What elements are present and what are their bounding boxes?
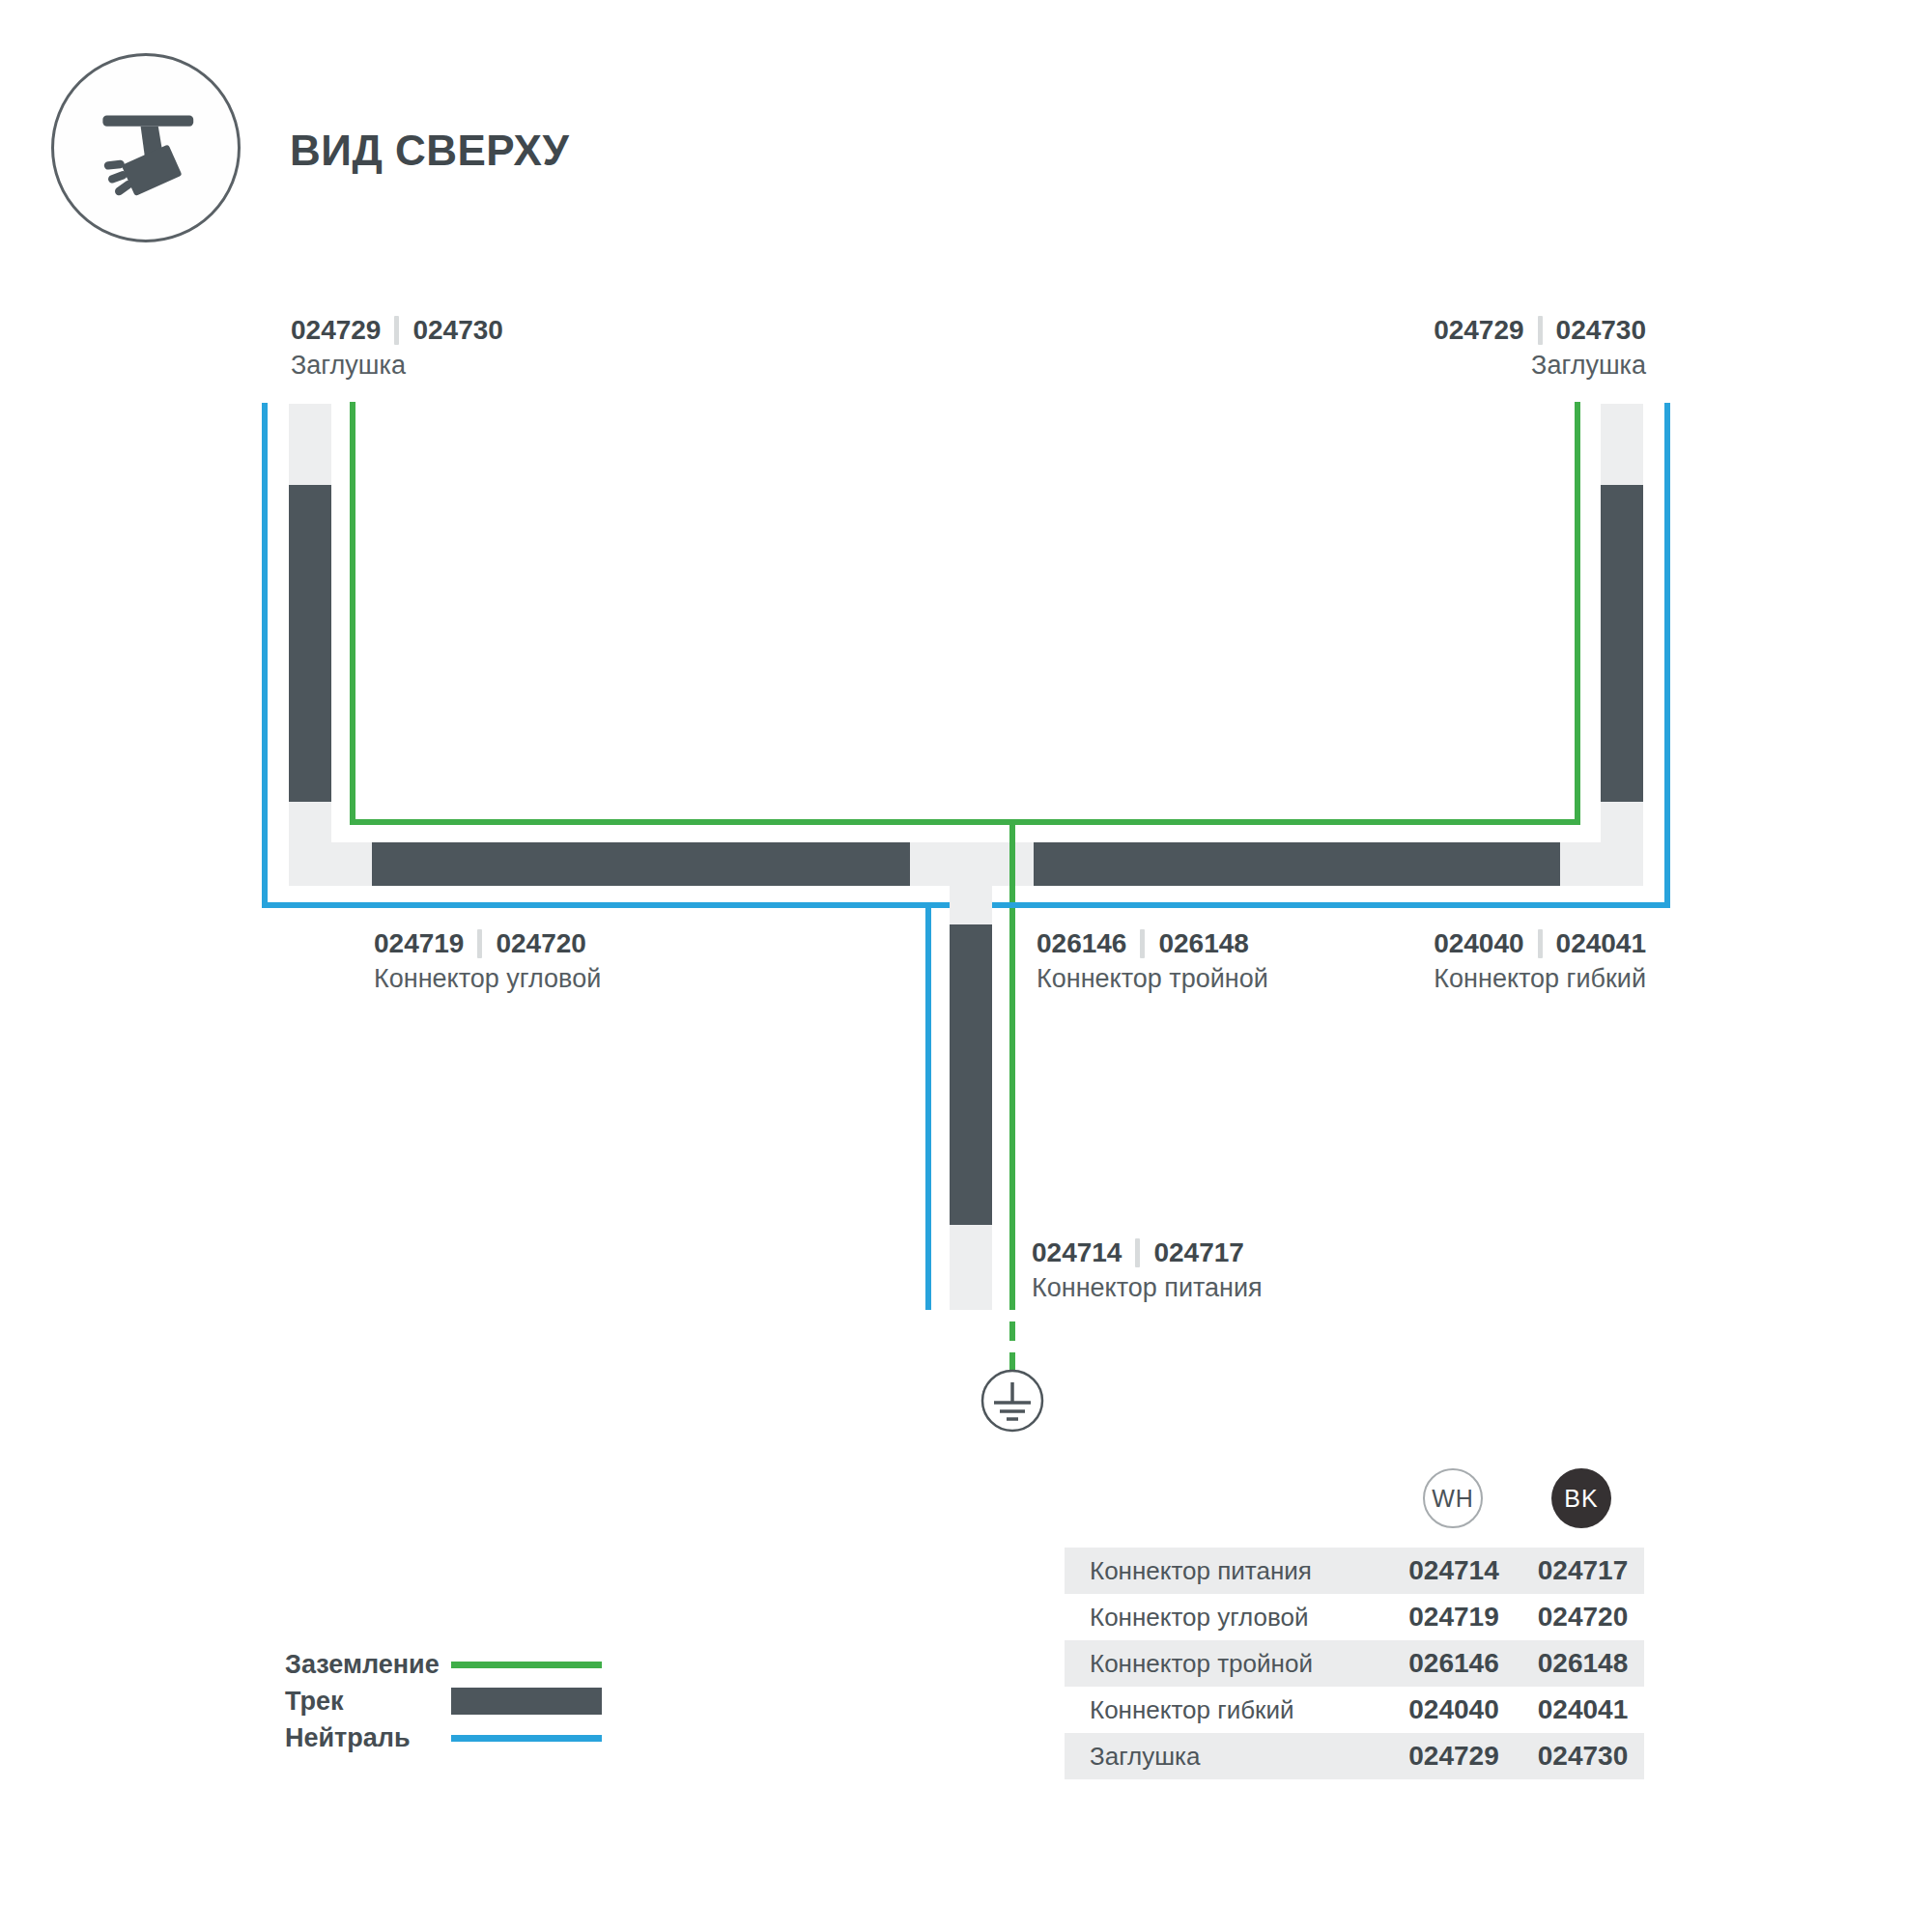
row-code-bk: 024041: [1521, 1694, 1644, 1725]
code-divider: [1538, 316, 1543, 345]
track-segment-stem: [950, 924, 992, 1225]
row-part-name: Коннектор питания: [1065, 1556, 1386, 1586]
track-segment-left: [289, 485, 331, 802]
code-divider: [477, 929, 482, 958]
table-row: Коннектор тройной 026146 026148: [1065, 1640, 1644, 1687]
table-row: Коннектор угловой 024719 024720: [1065, 1594, 1644, 1640]
earth-ground-icon: [980, 1368, 1045, 1434]
legend-swatch-ground: [451, 1662, 602, 1668]
track-spotlight-icon: [81, 83, 216, 218]
row-code-wh: 024040: [1386, 1694, 1521, 1725]
part-code-wh: 024040: [1434, 928, 1523, 959]
legend-label-neutral: Нейтраль: [285, 1723, 451, 1753]
track-segment-top-left: [372, 842, 910, 886]
code-divider: [1140, 929, 1145, 958]
label-power-connector: 024714 024717 Коннектор питания: [1032, 1237, 1263, 1303]
row-part-name: Коннектор тройной: [1065, 1649, 1386, 1679]
row-code-bk: 026148: [1521, 1648, 1644, 1679]
column-badge-white: WH: [1423, 1468, 1483, 1528]
row-part-name: Заглушка: [1065, 1742, 1386, 1772]
code-divider: [1135, 1238, 1140, 1267]
part-code-bk: 026148: [1158, 928, 1248, 959]
row-part-name: Коннектор угловой: [1065, 1603, 1386, 1633]
legend-swatch-neutral: [451, 1735, 602, 1742]
ground-line-horizontal: [350, 819, 1580, 825]
row-code-bk: 024730: [1521, 1741, 1644, 1772]
part-name: Коннектор угловой: [374, 964, 601, 994]
row-code-bk: 024717: [1521, 1555, 1644, 1586]
neutral-line-left: [262, 403, 268, 908]
row-code-wh: 026146: [1386, 1648, 1521, 1679]
part-code-wh: 024729: [1434, 315, 1523, 346]
row-code-wh: 024714: [1386, 1555, 1521, 1586]
row-part-name: Коннектор гибкий: [1065, 1695, 1386, 1725]
part-code-wh: 024729: [291, 315, 381, 346]
part-code-wh: 026146: [1037, 928, 1126, 959]
part-name: Заглушка: [291, 351, 503, 381]
page-title: ВИД СВЕРХУ: [290, 127, 569, 175]
parts-table: Коннектор питания 024714 024717 Коннекто…: [1065, 1548, 1644, 1779]
part-name: Заглушка: [1434, 351, 1646, 381]
track-spotlight-badge: [51, 53, 241, 242]
legend: Заземление Трек Нейтраль: [285, 1646, 602, 1756]
neutral-line-drop: [925, 902, 931, 1310]
part-code-bk: 024720: [496, 928, 585, 959]
neutral-line-right: [1664, 403, 1670, 908]
track-segment-right: [1601, 485, 1643, 802]
ground-line-right: [1575, 402, 1580, 825]
row-code-bk: 024720: [1521, 1602, 1644, 1633]
page: ВИД СВЕРХУ 024729 024730 Заглушка 024729…: [0, 0, 1932, 1932]
legend-label-ground: Заземление: [285, 1650, 451, 1680]
code-divider: [1538, 929, 1543, 958]
table-row: Коннектор гибкий 024040 024041: [1065, 1687, 1644, 1733]
neutral-line-horizontal-left: [262, 902, 950, 908]
row-code-wh: 024729: [1386, 1741, 1521, 1772]
table-row: Коннектор питания 024714 024717: [1065, 1548, 1644, 1594]
label-endcap-left: 024729 024730 Заглушка: [291, 315, 503, 381]
legend-swatch-track: [451, 1688, 602, 1715]
part-code-bk: 024717: [1153, 1237, 1243, 1268]
label-corner-connector: 024719 024720 Коннектор угловой: [374, 928, 601, 994]
neutral-line-horizontal-right: [992, 902, 1670, 908]
part-name: Коннектор тройной: [1037, 964, 1268, 994]
row-code-wh: 024719: [1386, 1602, 1521, 1633]
part-code-bk: 024730: [412, 315, 502, 346]
ground-line-drop: [1009, 819, 1015, 1310]
column-badge-black: BK: [1551, 1468, 1611, 1528]
part-code-bk: 024041: [1556, 928, 1646, 959]
part-name: Коннектор гибкий: [1434, 964, 1646, 994]
label-flexible-connector: 024040 024041 Коннектор гибкий: [1434, 928, 1646, 994]
code-divider: [394, 316, 399, 345]
ground-line-left: [350, 402, 355, 825]
label-endcap-right: 024729 024730 Заглушка: [1434, 315, 1646, 381]
track-segment-top-right: [1034, 842, 1560, 886]
part-code-wh: 024719: [374, 928, 464, 959]
table-row: Заглушка 024729 024730: [1065, 1733, 1644, 1779]
label-triple-connector: 026146 026148 Коннектор тройной: [1037, 928, 1268, 994]
ground-line-dash-1: [1009, 1321, 1015, 1341]
part-code-wh: 024714: [1032, 1237, 1122, 1268]
legend-label-track: Трек: [285, 1687, 451, 1717]
part-code-bk: 024730: [1556, 315, 1646, 346]
part-name: Коннектор питания: [1032, 1273, 1263, 1303]
